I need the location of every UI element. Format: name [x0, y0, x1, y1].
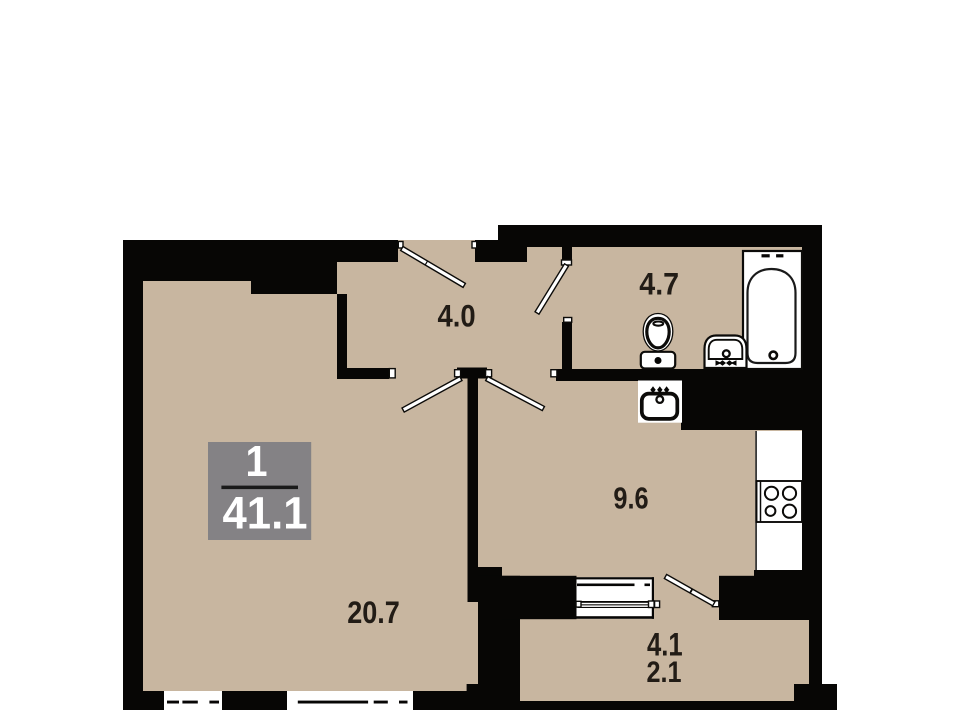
svg-text:2.1: 2.1 — [646, 655, 681, 689]
svg-text:1: 1 — [245, 436, 267, 485]
svg-text:4.0: 4.0 — [438, 299, 476, 334]
svg-text:20.7: 20.7 — [347, 595, 400, 631]
svg-text:4.7: 4.7 — [639, 267, 679, 302]
svg-text:9.6: 9.6 — [613, 481, 648, 515]
svg-text:41.1: 41.1 — [223, 489, 308, 539]
